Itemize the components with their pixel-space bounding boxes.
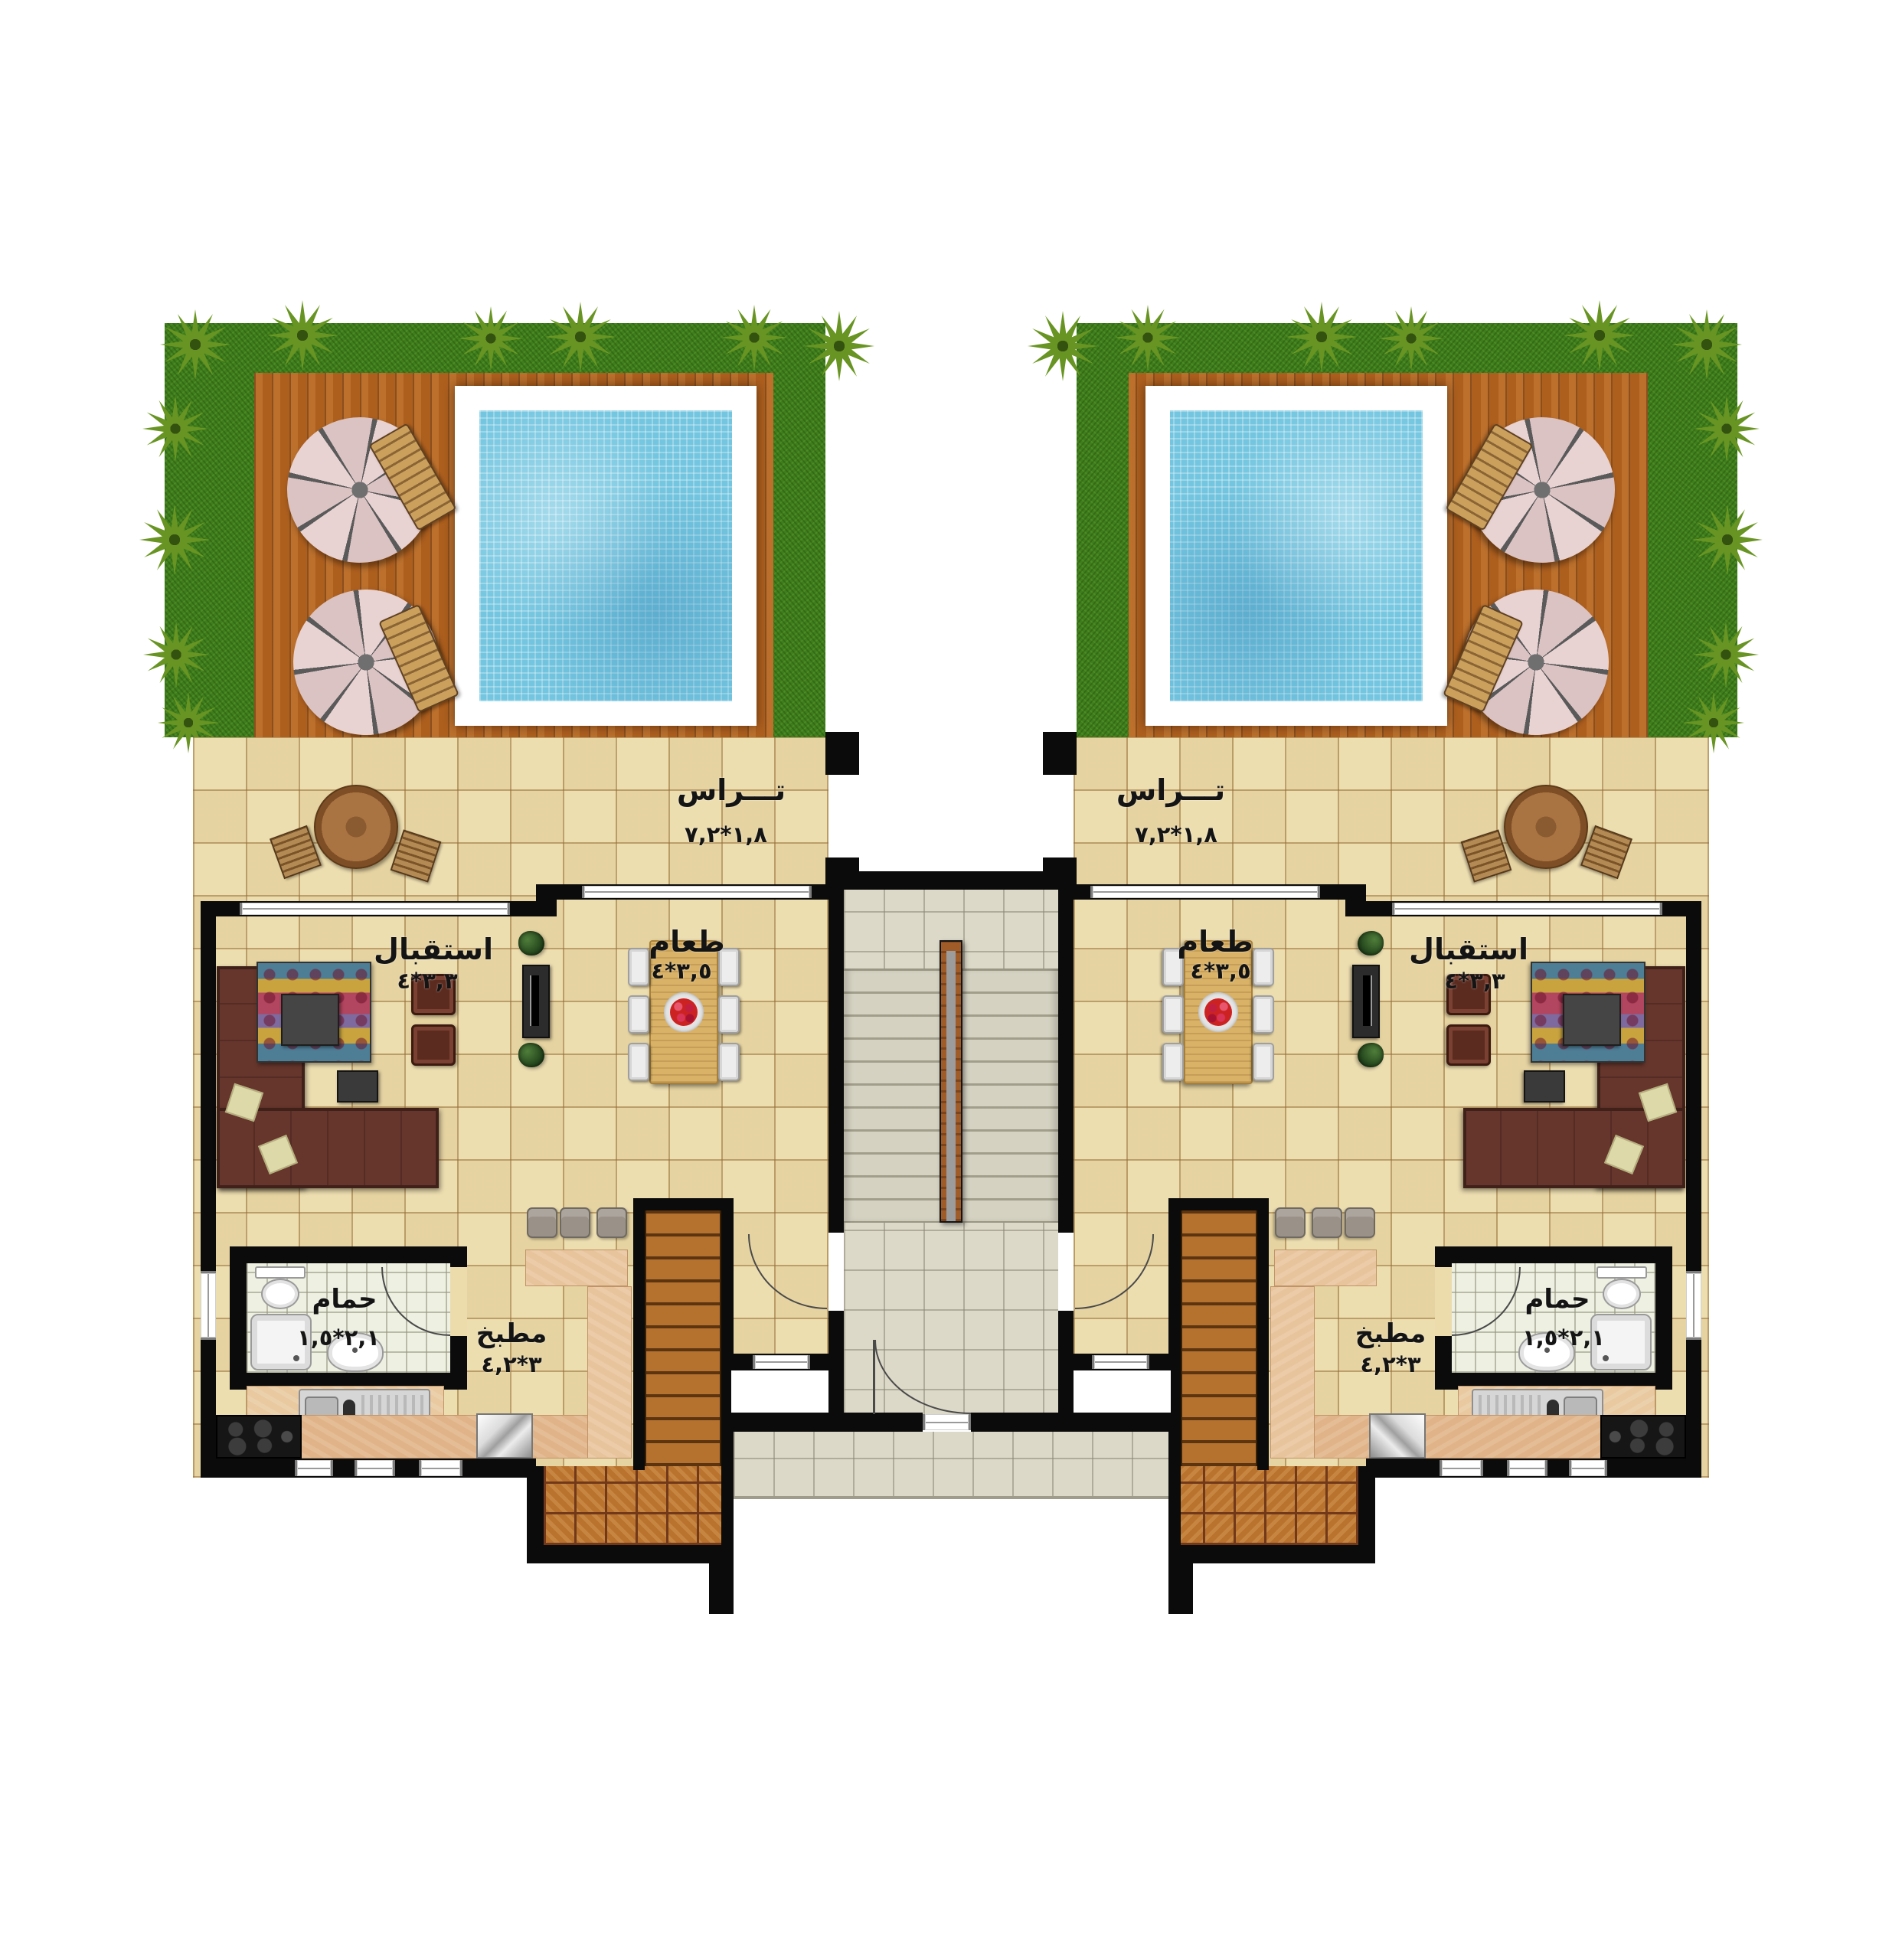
terrace-label: تـــراس: [1116, 773, 1225, 807]
dining-dims: ٣,٥*٤: [651, 958, 711, 984]
dining-label: طعام: [649, 925, 724, 959]
bathroom-label: حمام: [312, 1284, 377, 1315]
reception-dims: ٣,٣*٤: [1444, 968, 1505, 994]
terrace-label: تـــراس: [677, 773, 786, 807]
kitchen-dims: ٣*٤,٢: [481, 1351, 541, 1377]
bathroom-dims: ٢,١*١,٥: [1522, 1325, 1605, 1351]
floor-plan: تـــراس ١,٨*٧,٢ استقبال ٣,٣*٤ طعام ٣,٥*٤…: [0, 0, 1902, 1960]
kitchen-dims: ٣*٤,٢: [1360, 1351, 1420, 1377]
kitchen-label: مطبخ: [476, 1318, 547, 1349]
reception-label: استقبال: [374, 933, 493, 966]
terrace-dims: ١,٨*٧,٢: [685, 822, 767, 848]
kitchen-label: مطبخ: [1355, 1318, 1426, 1349]
terrace-dims: ١,٨*٧,٢: [1135, 822, 1217, 848]
dining-label: طعام: [1177, 925, 1253, 959]
reception-dims: ٣,٣*٤: [397, 968, 457, 994]
reception-label: استقبال: [1409, 933, 1528, 966]
bathroom-dims: ٢,١*١,٥: [297, 1325, 380, 1351]
bathroom-label: حمام: [1525, 1284, 1590, 1315]
room-labels: تـــراس ١,٨*٧,٢ استقبال ٣,٣*٤ طعام ٣,٥*٤…: [0, 0, 1902, 1960]
dining-dims: ٣,٥*٤: [1190, 958, 1250, 984]
